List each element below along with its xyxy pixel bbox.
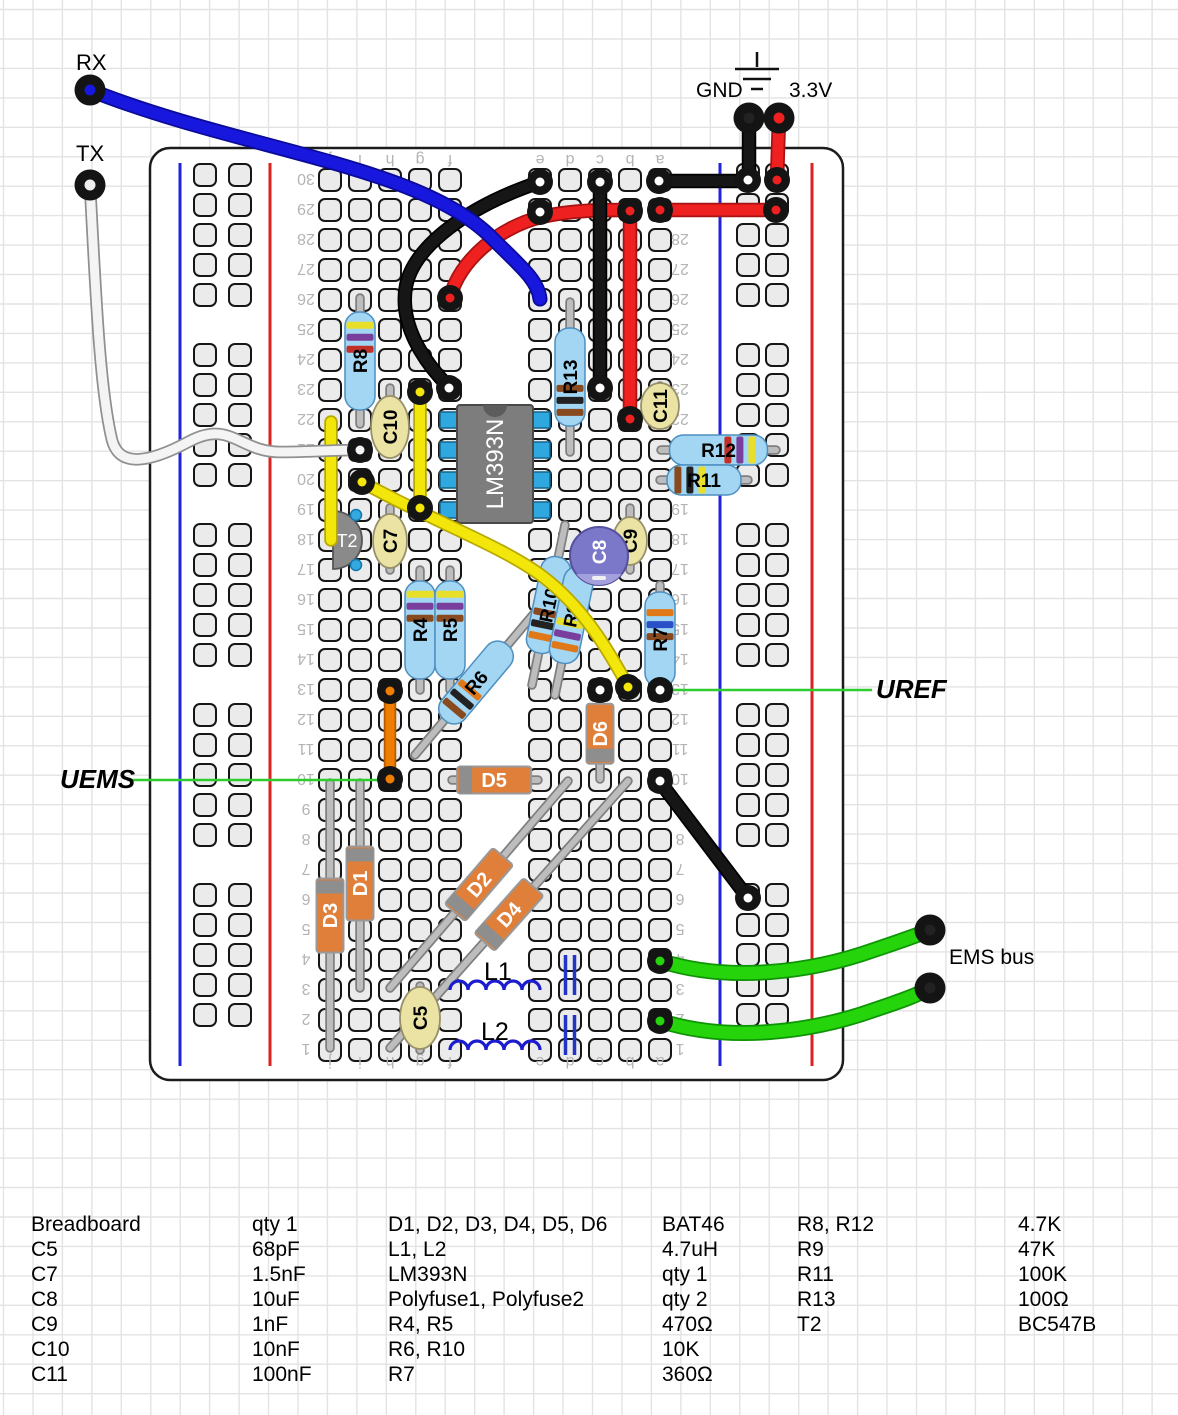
row-number: 20: [297, 470, 315, 487]
row-number: 24: [671, 350, 689, 367]
column-letter: e: [535, 1053, 544, 1070]
resistor-label: R8: [351, 349, 372, 373]
row-number: 8: [301, 830, 310, 847]
row-number: 19: [297, 500, 315, 517]
parts-cell: 100nF: [252, 1363, 312, 1386]
ems-bus-label: EMS bus: [949, 946, 1034, 970]
column-letter: c: [596, 151, 604, 168]
parts-cell: 100K: [1018, 1263, 1067, 1286]
parts-cell: C11: [31, 1363, 68, 1386]
row-number: 10: [297, 770, 315, 787]
row-number: 27: [297, 260, 315, 277]
junction: [617, 198, 643, 224]
parts-cell: C5: [31, 1238, 58, 1261]
transistor-label: T2: [336, 531, 357, 551]
resistor-R4: R4: [405, 570, 435, 690]
row-number: 10: [671, 770, 689, 787]
resistor-label: R4: [411, 617, 432, 642]
diode-label: D6: [590, 721, 612, 747]
row-number: 24: [297, 350, 315, 367]
capacitor-label: C7: [381, 529, 402, 553]
capacitor-C11: C11: [641, 383, 679, 429]
row-number: 15: [297, 620, 315, 637]
tx-label: TX: [76, 141, 104, 167]
junction: [646, 168, 672, 194]
junction: [615, 674, 641, 700]
row-number: 27: [671, 260, 689, 277]
junction: [764, 167, 790, 193]
parts-cell: L1, L2: [388, 1238, 446, 1261]
gnd-pin: [734, 103, 765, 134]
row-number: 4: [301, 950, 310, 967]
row-number: 19: [671, 500, 689, 517]
diode-label: D1: [350, 871, 372, 897]
row-number: 18: [671, 530, 689, 547]
row-number: 16: [297, 590, 315, 607]
parts-cell: R6, R10: [388, 1338, 465, 1361]
uems-callout: UEMS: [60, 764, 135, 795]
junction: [407, 495, 433, 521]
junction: [527, 199, 553, 225]
row-number: 6: [675, 890, 684, 907]
row-number: 30: [297, 170, 315, 187]
tx-pin: [75, 170, 106, 201]
junction: [587, 169, 613, 195]
row-number: 29: [297, 200, 315, 217]
column-letter: b: [625, 151, 634, 168]
parts-cell: D1, D2, D3, D4, D5, D6: [388, 1213, 607, 1236]
capacitor-C8: C8: [570, 527, 628, 585]
row-number: 8: [675, 830, 684, 847]
junction: [647, 1008, 673, 1034]
parts-cell: BAT46: [662, 1213, 725, 1236]
column-letter: g: [416, 151, 425, 168]
resistor-R11: R11: [660, 465, 748, 495]
junction: [647, 768, 673, 794]
rx-pin: [75, 75, 106, 106]
parts-cell: 1nF: [252, 1313, 288, 1336]
junction: [436, 375, 462, 401]
parts-cell: C9: [31, 1313, 58, 1336]
row-number: 25: [297, 320, 315, 337]
junction: [347, 437, 373, 463]
parts-cell: R13: [797, 1288, 836, 1311]
column-letter: d: [566, 1053, 575, 1070]
ems-pin-2: [915, 973, 946, 1004]
row-number: 3: [301, 980, 310, 997]
row-number: 1: [675, 1040, 684, 1057]
resistor-R8: R8: [345, 298, 375, 424]
row-number: 23: [297, 380, 315, 397]
parts-cell: R4, R5: [388, 1313, 453, 1336]
column-letter: e: [535, 151, 544, 168]
column-letter: i: [358, 1053, 362, 1070]
parts-cell: 10nF: [252, 1338, 300, 1361]
parts-cell: LM393N: [388, 1263, 467, 1286]
parts-cell: R11: [797, 1263, 834, 1286]
junction: [735, 885, 761, 911]
parts-cell: qty 2: [662, 1288, 708, 1311]
resistor-label: R11: [687, 471, 721, 492]
row-number: 25: [671, 320, 689, 337]
capacitor-label: C10: [381, 410, 402, 445]
row-number: 7: [675, 860, 684, 877]
column-letter: d: [566, 151, 575, 168]
junction: [377, 766, 403, 792]
parts-cell: qty 1: [252, 1213, 298, 1236]
junction: [349, 469, 375, 495]
parts-cell: R9: [797, 1238, 824, 1261]
capacitor-label: C11: [651, 389, 672, 423]
parts-cell: C10: [31, 1338, 70, 1361]
junction: [735, 167, 761, 193]
parts-cell: 1.5nF: [252, 1263, 306, 1286]
junction: [647, 948, 673, 974]
inductor-label: L2: [481, 1018, 509, 1046]
parts-cell: 4.7uH: [662, 1238, 718, 1261]
parts-cell: 470Ω: [662, 1313, 713, 1336]
row-number: 17: [671, 560, 689, 577]
junction: [617, 406, 643, 432]
minus-polarity-icon: [592, 576, 606, 580]
row-number: 28: [671, 230, 689, 247]
capacitor-C5: C5: [400, 986, 440, 1050]
junction: [437, 285, 463, 311]
parts-cell: 4.7K: [1018, 1213, 1061, 1236]
row-number: 26: [297, 290, 315, 307]
parts-cell: R8, R12: [797, 1213, 874, 1236]
capacitor-label: C5: [411, 1005, 432, 1030]
uref-callout: UREF: [876, 674, 947, 705]
column-letter: a: [655, 1053, 664, 1070]
ic-label: LM393N: [482, 419, 509, 510]
junction: [587, 677, 613, 703]
row-number: 22: [297, 410, 315, 427]
column-letter: h: [386, 1053, 395, 1070]
row-number: 5: [675, 920, 684, 937]
diode-label: D3: [320, 903, 342, 929]
parts-cell: R7: [388, 1363, 415, 1386]
column-letter: h: [386, 151, 395, 168]
row-number: 17: [297, 560, 315, 577]
row-number: 2: [301, 1010, 310, 1027]
diode-D5: D5: [452, 767, 538, 794]
resistor-label: R5: [441, 617, 462, 642]
parts-cell: 68pF: [252, 1238, 300, 1261]
row-number: 12: [671, 710, 689, 727]
row-number: 13: [297, 680, 315, 697]
row-number: 28: [297, 230, 315, 247]
rx-label: RX: [76, 50, 107, 76]
junction: [647, 197, 673, 223]
resistor-R12: R12: [661, 435, 776, 465]
junction: [647, 677, 673, 703]
parts-cell: 47K: [1018, 1238, 1055, 1261]
inductor-label: L1: [484, 958, 512, 986]
parts-cell: Polyfuse1, Polyfuse2: [388, 1288, 584, 1311]
resistor-label: R7: [651, 627, 672, 651]
v33-label: 3.3V: [789, 79, 832, 103]
resistor-label: R13: [561, 360, 582, 395]
column-letter: a: [655, 151, 664, 168]
parts-cell: BC547B: [1018, 1313, 1096, 1336]
capacitor-label: C8: [590, 540, 611, 564]
circuit-diagram-page: 1122334455667788991010111112121313141415…: [0, 0, 1178, 1415]
resistor-label: R12: [701, 441, 736, 462]
row-number: 11: [672, 740, 689, 757]
column-letter: f: [447, 1053, 452, 1070]
parts-cell: C8: [31, 1288, 58, 1311]
junction: [763, 197, 789, 223]
ems-pin-1: [915, 915, 946, 946]
parts-cell: 10uF: [252, 1288, 300, 1311]
resistor-R5: R5: [435, 570, 465, 690]
row-number: 9: [301, 800, 310, 817]
row-number: 1: [301, 1040, 310, 1057]
junction: [407, 379, 433, 405]
column-letter: g: [416, 1053, 425, 1070]
column-letter: f: [447, 151, 452, 168]
row-number: 18: [297, 530, 315, 547]
breadboard-diagram: 1122334455667788991010111112121313141415…: [0, 0, 1178, 1415]
parts-cell: 360Ω: [662, 1363, 713, 1386]
row-number: 11: [298, 740, 315, 757]
row-number: 7: [301, 860, 310, 877]
v33-pin: [764, 103, 795, 134]
parts-cell: qty 1: [662, 1263, 708, 1286]
row-number: 3: [675, 980, 684, 997]
gnd-label: GND: [696, 79, 743, 103]
diode-label: D5: [481, 770, 507, 792]
row-number: 12: [297, 710, 315, 727]
parts-cell: 100Ω: [1018, 1288, 1069, 1311]
junction: [587, 375, 613, 401]
column-letter: b: [625, 1053, 634, 1070]
junction: [527, 169, 553, 195]
column-letter: c: [596, 1053, 604, 1070]
row-number: 5: [301, 920, 310, 937]
row-number: 6: [301, 890, 310, 907]
parts-cell: T2: [797, 1313, 822, 1336]
parts-cell: 10K: [662, 1338, 699, 1361]
parts-cell: C7: [31, 1263, 58, 1286]
column-letter: j: [328, 1053, 333, 1070]
row-number: 14: [297, 650, 315, 667]
junction: [377, 678, 403, 704]
parts-cell: Breadboard: [31, 1213, 141, 1236]
ic-LM393N: LM393N: [440, 405, 550, 523]
row-number: 26: [671, 290, 689, 307]
row-number: 13: [671, 680, 689, 697]
